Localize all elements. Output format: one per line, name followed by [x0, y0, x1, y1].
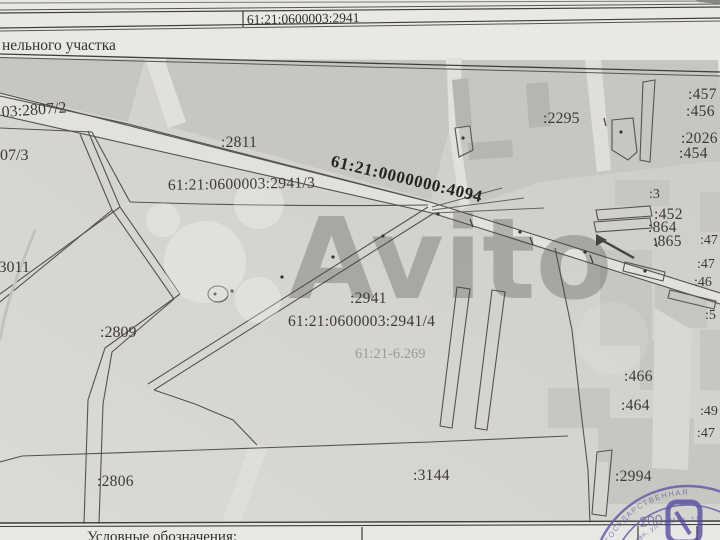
header-parcel-number: 61:21:0600003:2941 [247, 10, 360, 27]
parcel-label: :454 [679, 145, 708, 162]
parcel-label: :2941 [350, 290, 387, 307]
parcel-label: :47 [697, 257, 715, 272]
parcel-label: :49 [700, 404, 718, 419]
parcel-label: :3144 [413, 467, 450, 484]
parcel-label: :464 [621, 397, 650, 414]
building-3 [468, 140, 513, 160]
watermark-circle [146, 203, 180, 237]
header-subtitle: нельного участка [2, 37, 116, 54]
parcel-label: 61:21:0600003:2941/4 [288, 313, 435, 330]
parcel-block-6 [700, 330, 720, 390]
watermark-text: Avito [288, 195, 613, 325]
parcel-label: :2994 [615, 468, 652, 485]
parcel-label: :3011 [0, 259, 30, 276]
legend-label: Условные обозначения: [87, 529, 237, 540]
parcel-label: :2809 [100, 324, 136, 341]
cadastral-plan-photo: Avito 03:2807/2 07/3 :2811 61:21:0600003… [0, 0, 720, 540]
parcel-label: :2806 [97, 473, 134, 490]
point-mark [619, 130, 622, 133]
parcel-right-edge [700, 192, 720, 232]
parcel-label: :46 [694, 275, 712, 290]
parcel-label: :2811 [221, 134, 257, 151]
parcel-label: :47 [700, 233, 718, 248]
watermark-circle [235, 277, 281, 323]
parcel-label: :466 [624, 368, 653, 385]
parcel-label: :865 [653, 233, 682, 250]
watermark-circle [164, 221, 246, 303]
parcel-label: :47 [697, 426, 715, 441]
light-gap-right [652, 308, 692, 470]
parcel-label: 61:21-6.269 [355, 346, 425, 362]
stamp-number: 200 [638, 511, 663, 530]
parcel-label: 61:21:0600003:2941/3 [168, 174, 316, 194]
parcel-label: :5 [705, 308, 716, 323]
parcel-label: :456 [686, 103, 715, 120]
point-mark [461, 136, 464, 139]
watermark-circle-faint [576, 302, 648, 374]
cadastral-map: Avito 03:2807/2 07/3 :2811 61:21:0600003… [0, 0, 720, 540]
parcel-label: :2295 [543, 110, 579, 127]
parcel-3 [615, 180, 670, 206]
parcel-label: :457 [688, 86, 717, 103]
parcel-label: 07/3 [0, 147, 28, 164]
parcel-label: :3 [649, 187, 660, 202]
